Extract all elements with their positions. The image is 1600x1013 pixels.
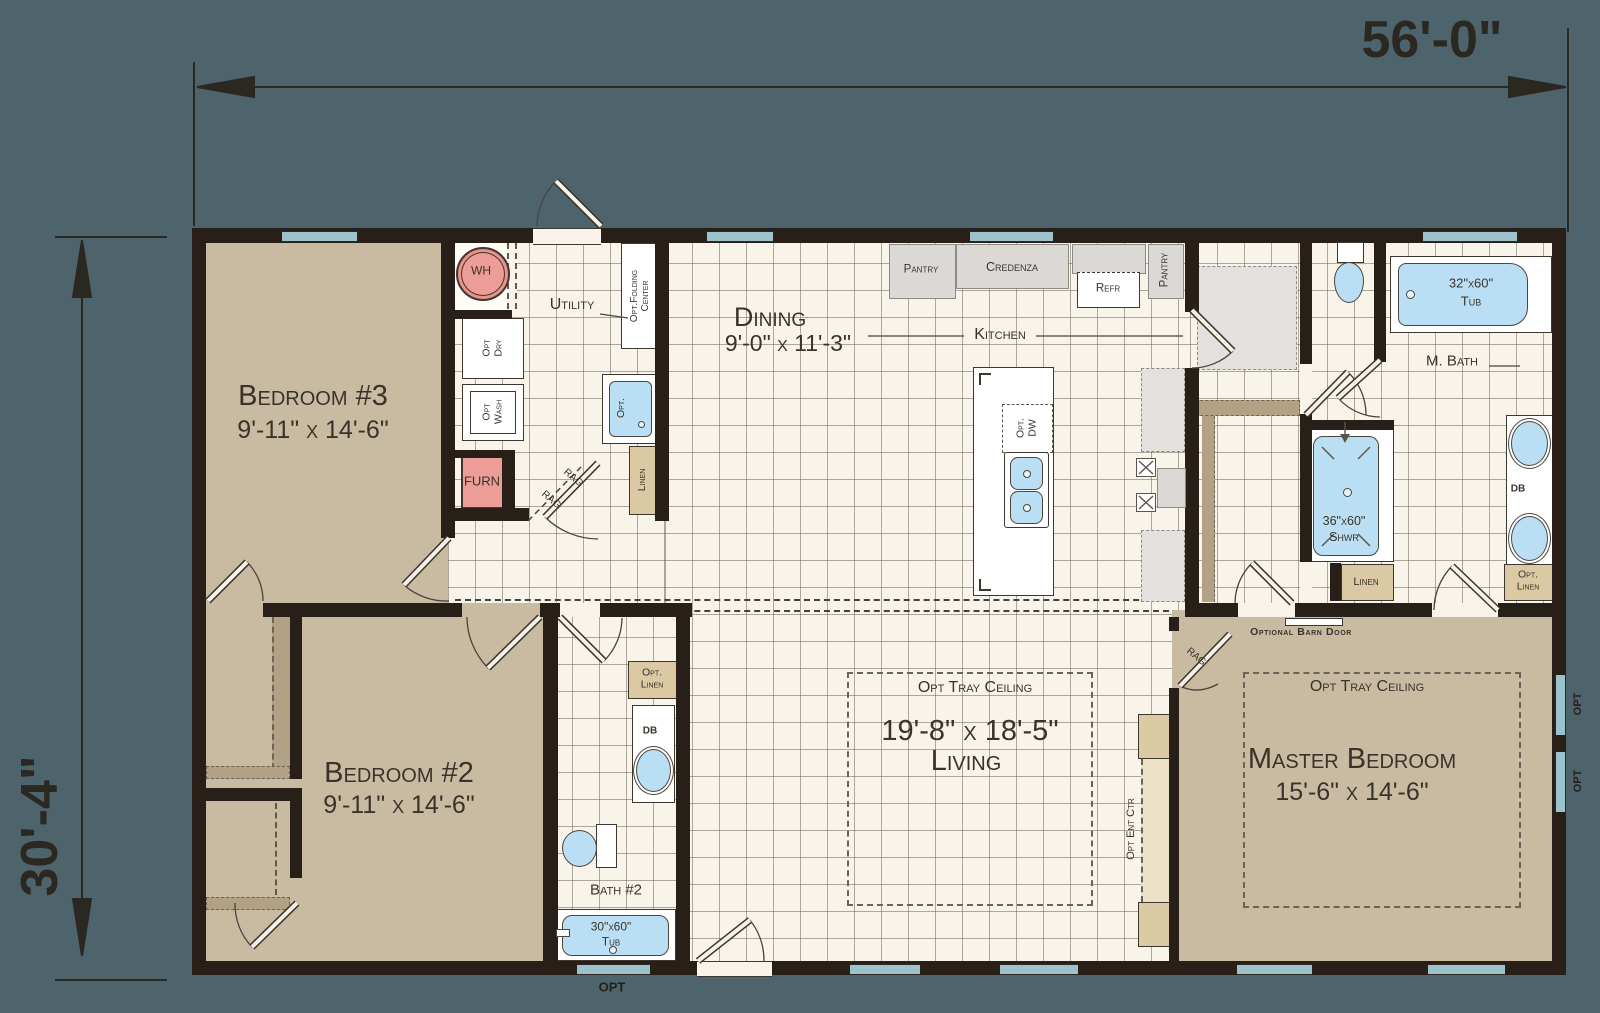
dining-size: 9'-0" x 11'-3" <box>725 331 851 357</box>
linework-overlay <box>0 0 1600 1013</box>
opt-dryer-label: OptDry <box>481 339 504 356</box>
master-tub-label: Tub <box>1461 295 1481 310</box>
bedroom3-label: Bedroom #3 <box>238 380 388 412</box>
bedroom3-size: 9'-11" x 14'-6" <box>237 416 388 444</box>
kitchen-label: Kitchen <box>974 326 1026 344</box>
bath2-tub-label: Tub <box>602 935 620 948</box>
bedroom2-label: Bedroom #2 <box>324 757 474 789</box>
opt-linen-bath2-label: Opt.Linen <box>641 667 664 691</box>
shower-label: Shwr <box>1329 530 1359 544</box>
utility-label: Utility <box>550 296 595 314</box>
pantry-tall-label: Pantry <box>1159 253 1172 288</box>
furnace-label: FURN <box>464 475 500 490</box>
pantry-cabinet-label: Pantry <box>904 264 939 277</box>
floor-plan: 56'-0" 30'-4" Bedroom #3 9'-11" x 14'-6"… <box>0 0 1600 1013</box>
master-tub-size-label: 32"x60" <box>1449 277 1493 292</box>
tray-ceiling-master-label: Opt Tray Ceiling <box>1310 678 1424 696</box>
opt-linen-mbath-label: Opt.Linen <box>1517 569 1540 593</box>
opt-window-bottom-label: OPT <box>599 981 626 996</box>
linen-mbath-label: Linen <box>1353 576 1378 588</box>
water-heater-label: WH <box>471 264 491 277</box>
dimension-height: 30'-4" <box>10 755 70 896</box>
linen-utility-label: Linen <box>637 469 649 492</box>
opt-washer-label: OptWash <box>481 400 504 424</box>
refrigerator-label: Refr <box>1096 283 1120 296</box>
opt-window-right-label-1: OPT <box>1572 693 1584 716</box>
opt-window-right-label-2: OPT <box>1572 770 1584 793</box>
db-bath2-label: DB <box>643 725 657 736</box>
shower-head-icon <box>1340 434 1350 443</box>
opt-folding-center-label: Opt.FoldingCenter <box>629 270 651 322</box>
bath2-tub-size-label: 30"x60" <box>591 920 632 933</box>
master-bedroom-size: 15'-6" x 14'-6" <box>1275 778 1428 806</box>
living-size: 19'-8" x 18'-5" <box>881 715 1058 747</box>
db-mbath-label: DB <box>1511 483 1525 494</box>
opt-ent-ctr-label: Opt Ent Ctr <box>1125 798 1137 860</box>
master-bedroom-label: Master Bedroom <box>1248 743 1456 775</box>
barn-door-label: Optional Barn Door <box>1250 627 1352 639</box>
opt-dishwasher-label: Opt.DW <box>1015 418 1038 438</box>
dimension-width: 56'-0" <box>1361 10 1502 70</box>
tray-ceiling-living-label: Opt Tray Ceiling <box>918 679 1032 697</box>
living-label: Living <box>931 745 1002 777</box>
dining-label: Dining <box>734 302 806 332</box>
mbath-label: M. Bath <box>1426 354 1478 371</box>
credenza-label: Credenza <box>986 260 1038 274</box>
bath2-label: Bath #2 <box>590 883 642 900</box>
shower-size-label: 36"x60" <box>1323 514 1366 528</box>
opt-sink-label: Opt. <box>616 398 628 418</box>
bedroom2-size: 9'-11" x 14'-6" <box>323 791 474 819</box>
